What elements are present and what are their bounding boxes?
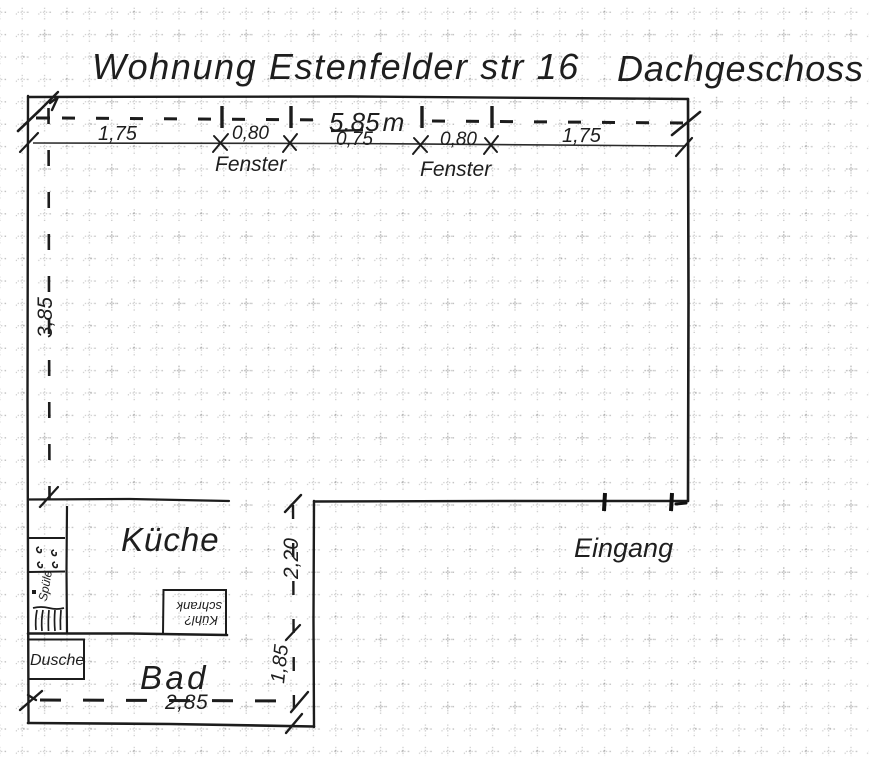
svg-text:Wohnung Estenfelder str 16: Wohnung Estenfelder str 16 xyxy=(92,46,580,87)
svg-text:Dachgeschoss: Dachgeschoss xyxy=(617,48,864,89)
svg-text:Fenster: Fenster xyxy=(420,158,492,181)
svg-text:Eingang: Eingang xyxy=(574,533,673,563)
svg-text:Kühl?: Kühl? xyxy=(184,613,218,628)
svg-text:1,85: 1,85 xyxy=(267,643,293,685)
svg-text:3,85: 3,85 xyxy=(34,297,57,338)
svg-text:2,85: 2,85 xyxy=(164,691,208,714)
svg-text:0,75: 0,75 xyxy=(336,129,373,150)
svg-text:Küche: Küche xyxy=(121,521,220,558)
svg-text:Fenster: Fenster xyxy=(215,153,287,176)
svg-text:0,80: 0,80 xyxy=(232,123,269,144)
svg-text:2,20: 2,20 xyxy=(280,538,303,580)
svg-text:1,75: 1,75 xyxy=(98,123,138,145)
svg-text:1,75: 1,75 xyxy=(562,125,602,147)
svg-text:0,80: 0,80 xyxy=(440,129,477,150)
svg-text:Dusche: Dusche xyxy=(30,652,84,669)
svg-text:schrank: schrank xyxy=(175,599,222,614)
